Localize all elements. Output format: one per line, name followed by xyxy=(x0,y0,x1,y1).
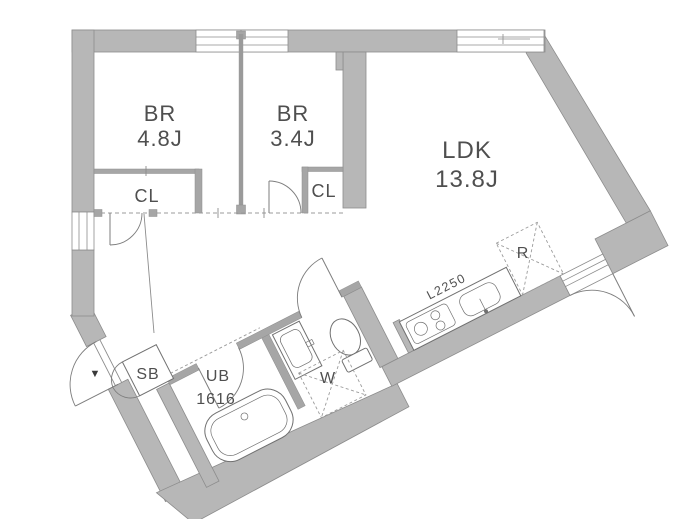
bedroom1-door-arc xyxy=(110,213,142,245)
hall-ldk-line xyxy=(144,214,154,333)
shoe-box-label: SB xyxy=(136,366,159,383)
closet2-label: CL xyxy=(311,181,336,201)
left-wall-upper xyxy=(72,30,94,212)
unit-bath-size: 1616 xyxy=(196,391,236,408)
boundary-stub-2 xyxy=(149,210,157,217)
boundary-stub-1 xyxy=(94,210,102,217)
washer-label: W xyxy=(320,370,336,387)
bedroom2-area: 3.4J xyxy=(270,126,316,151)
unit-bath-label: UB xyxy=(206,368,230,385)
entry-door-arc xyxy=(54,342,119,407)
ldk-area: 13.8J xyxy=(435,166,499,193)
service-door-opening xyxy=(560,254,613,295)
closet1-label: CL xyxy=(134,186,159,206)
right-slant-wall xyxy=(520,24,650,229)
bedroom1-label: BR xyxy=(144,101,177,126)
washroom-door-arc xyxy=(282,258,342,318)
entrance-marker: ▼ xyxy=(90,368,101,380)
bedroom2-label: BR xyxy=(277,101,310,126)
window-ldk xyxy=(457,30,544,52)
floorplan-svg: L2250 xyxy=(0,0,685,519)
ldk-label: LDK xyxy=(442,137,492,164)
floorplan-page: L2250 xyxy=(0,0,685,519)
window-left-wall xyxy=(72,212,94,250)
service-door-leaf xyxy=(613,274,635,317)
bedroom1-area: 4.8J xyxy=(137,126,183,151)
bedroom-divider-wall xyxy=(239,34,243,212)
bedroom2-ldk-wall-chunk xyxy=(336,52,343,70)
washroom-door-leaf xyxy=(322,258,342,297)
bedroom2-ldk-wall xyxy=(343,52,366,208)
left-wall-mid xyxy=(72,250,94,316)
refrigerator-label: R xyxy=(517,245,530,262)
bedroom2-door-arc xyxy=(269,181,301,213)
